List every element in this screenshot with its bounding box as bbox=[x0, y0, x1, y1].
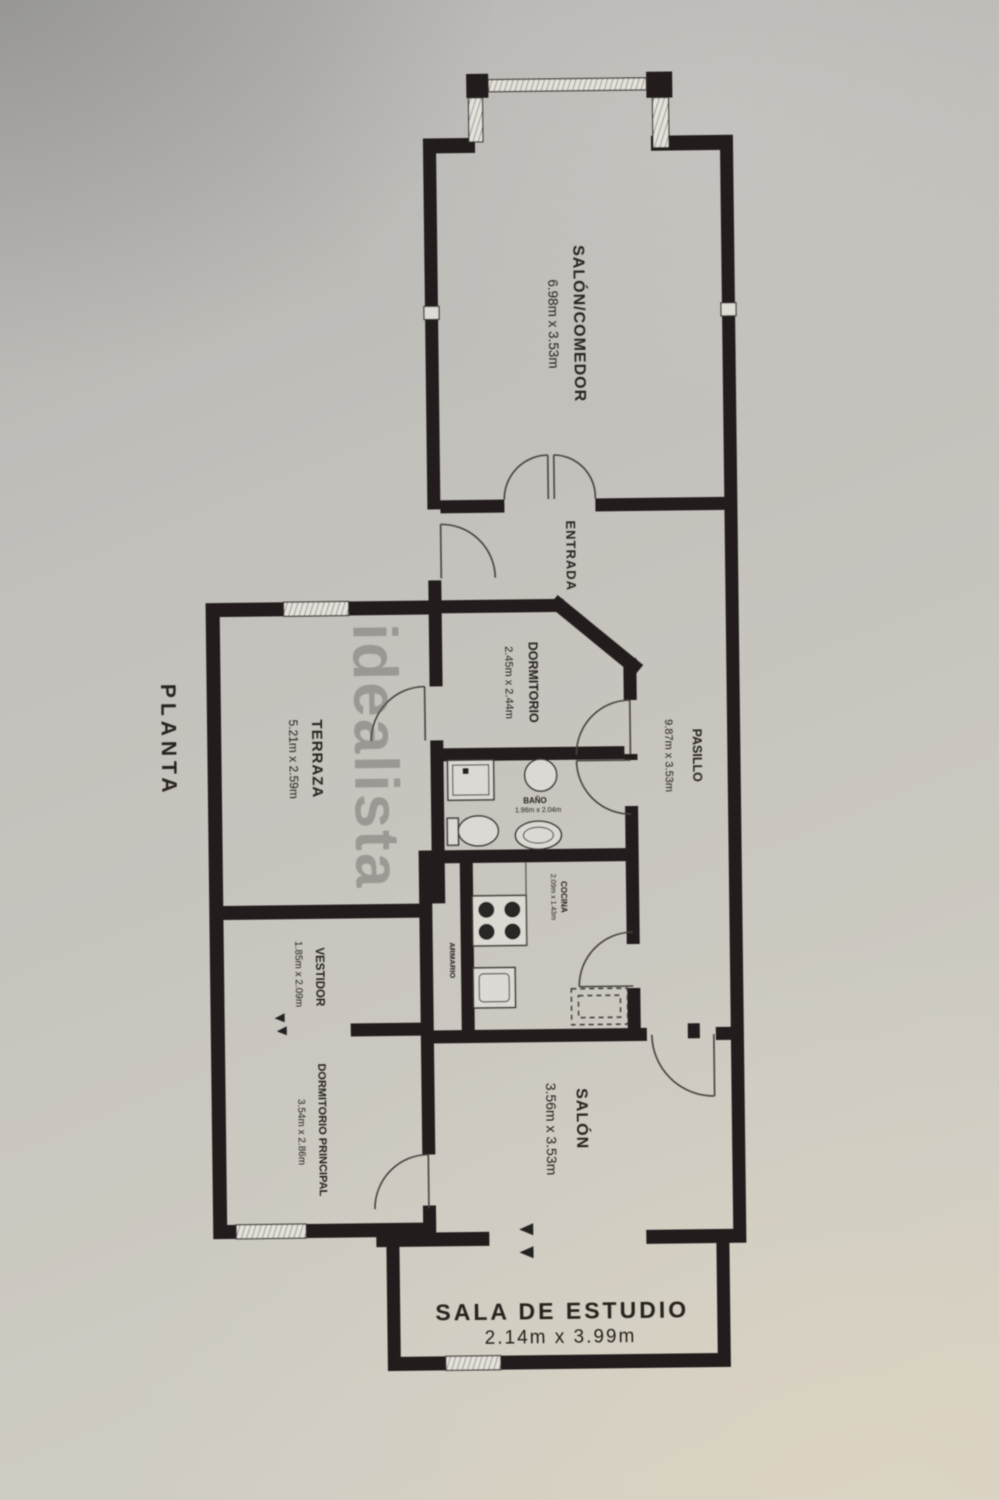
shower-tray bbox=[447, 760, 493, 801]
plan-group: idealista PLANTA SALÓN/COMEDOR 6.98m x 3… bbox=[149, 71, 749, 1374]
room-label-sala-de-estudio: SALA DE ESTUDIO bbox=[435, 1296, 689, 1325]
door-arc bbox=[554, 454, 596, 498]
wall bbox=[421, 1033, 435, 1154]
room-label-vestidor: VESTIDOR bbox=[313, 947, 326, 1007]
room-dims-dormitorio-principal: 3.54m x 2.86m bbox=[295, 1099, 307, 1165]
idealista-watermark: idealista bbox=[339, 623, 411, 890]
room-label-salon: SALÓN bbox=[572, 1088, 592, 1149]
room-dims-bano: 1.96m x 2.04m bbox=[515, 807, 562, 815]
bedroom-window bbox=[236, 1224, 306, 1239]
terraza-window bbox=[284, 601, 349, 616]
room-dims-vestidor: 1.85m x 2.09m bbox=[292, 941, 304, 1007]
wall bbox=[595, 497, 725, 512]
wall bbox=[428, 580, 442, 686]
room-label-pasillo: PASILLO bbox=[690, 729, 705, 783]
floor-plan-photo: idealista PLANTA SALÓN/COMEDOR 6.98m x 3… bbox=[0, 0, 999, 1500]
wall bbox=[421, 1028, 647, 1044]
wall bbox=[716, 1243, 731, 1367]
wall bbox=[646, 1229, 746, 1244]
door-leaf bbox=[425, 687, 426, 741]
room-dims-dormitorio: 2.45m x 2.44m bbox=[502, 646, 515, 719]
room-dims-salon: 3.56m x 3.53m bbox=[543, 1083, 560, 1176]
plan-title: PLANTA bbox=[156, 684, 180, 798]
wall-vent-left bbox=[424, 306, 439, 319]
room-dims-terraza: 5.21m x 2.59m bbox=[286, 719, 301, 799]
door-arc bbox=[652, 1034, 715, 1097]
room-label-dormitorio: DORMITORIO bbox=[526, 642, 541, 723]
door-arc bbox=[579, 932, 634, 987]
wall bbox=[425, 319, 440, 509]
wall bbox=[440, 500, 504, 514]
toilet-tank bbox=[447, 818, 458, 845]
room-label-dormitorio-principal: DORMITORIO PRINCIPAL bbox=[315, 1063, 329, 1196]
door-leaf bbox=[714, 1034, 715, 1096]
door-leaf bbox=[441, 524, 442, 578]
door-arc bbox=[374, 1155, 429, 1210]
door-leaf bbox=[554, 455, 555, 499]
appliance-dashed bbox=[571, 988, 627, 1025]
shower-drain bbox=[463, 768, 469, 774]
wall bbox=[349, 600, 442, 615]
room-dims-sala-de-estudio: 2.14m x 3.99m bbox=[485, 1326, 637, 1349]
appliance-dashed-inner bbox=[578, 995, 620, 1018]
wall bbox=[419, 850, 434, 1033]
stove bbox=[472, 895, 527, 946]
wall bbox=[209, 903, 432, 920]
wall bbox=[624, 754, 637, 760]
washbasin bbox=[524, 759, 556, 791]
wall bbox=[501, 1353, 731, 1370]
wall bbox=[623, 658, 637, 700]
wall bbox=[386, 1247, 401, 1371]
door-leaf bbox=[630, 700, 631, 754]
wall bbox=[625, 806, 640, 944]
door-leaf bbox=[579, 986, 633, 987]
wall bbox=[206, 603, 228, 1239]
door-arc bbox=[504, 455, 549, 500]
wall-chamfer bbox=[559, 604, 634, 667]
wall bbox=[443, 746, 624, 761]
wall bbox=[627, 988, 641, 1030]
wall bbox=[388, 1356, 446, 1371]
wall bbox=[430, 740, 445, 903]
door-arc bbox=[441, 524, 496, 579]
opening-arrow-icon bbox=[519, 1223, 533, 1235]
door-leaf bbox=[428, 1155, 429, 1209]
door-leaf bbox=[548, 455, 549, 499]
wall bbox=[460, 863, 475, 1033]
room-dims-cocina: 2.09m x 1.43m bbox=[549, 874, 557, 921]
room-label-entrada: ENTRADA bbox=[563, 520, 579, 591]
wall bbox=[376, 1232, 489, 1247]
door-arc bbox=[577, 760, 632, 815]
wall bbox=[720, 135, 746, 1238]
wall bbox=[442, 599, 564, 613]
room-label-cocina: COCINA bbox=[559, 881, 568, 913]
wall bbox=[423, 138, 438, 306]
wall bbox=[466, 74, 488, 98]
room-label-salon-comedor: SALÓN/COMEDOR bbox=[569, 245, 590, 402]
room-label-armario: ARMARIO bbox=[448, 942, 457, 978]
bidet bbox=[515, 821, 561, 850]
bay-window-left bbox=[468, 98, 483, 142]
door-leaf bbox=[577, 760, 631, 761]
bay-window-top bbox=[488, 78, 646, 92]
room-dims-pasillo: 9.87m x 3.53m bbox=[662, 719, 675, 792]
floor-plan-drawing: idealista PLANTA SALÓN/COMEDOR 6.98m x 3… bbox=[0, 0, 999, 1500]
room-dims-salon-comedor: 6.98m x 3.53m bbox=[545, 279, 561, 368]
wall-vent-right bbox=[721, 303, 736, 316]
opening-arrow-icon bbox=[275, 1013, 285, 1022]
study-window bbox=[446, 1356, 501, 1371]
wall bbox=[716, 1027, 731, 1040]
wall bbox=[646, 71, 672, 97]
toilet-bowl bbox=[458, 816, 498, 846]
opening-arrow-icon bbox=[519, 1246, 533, 1258]
bay-window-right bbox=[652, 98, 669, 148]
room-label-bano: BAÑO bbox=[523, 796, 547, 805]
wall bbox=[419, 848, 639, 864]
wall-pillar bbox=[688, 1023, 700, 1038]
wall bbox=[213, 1225, 236, 1239]
room-label-terraza: TERRAZA bbox=[308, 719, 326, 798]
opening-arrow-icon bbox=[277, 1026, 287, 1035]
